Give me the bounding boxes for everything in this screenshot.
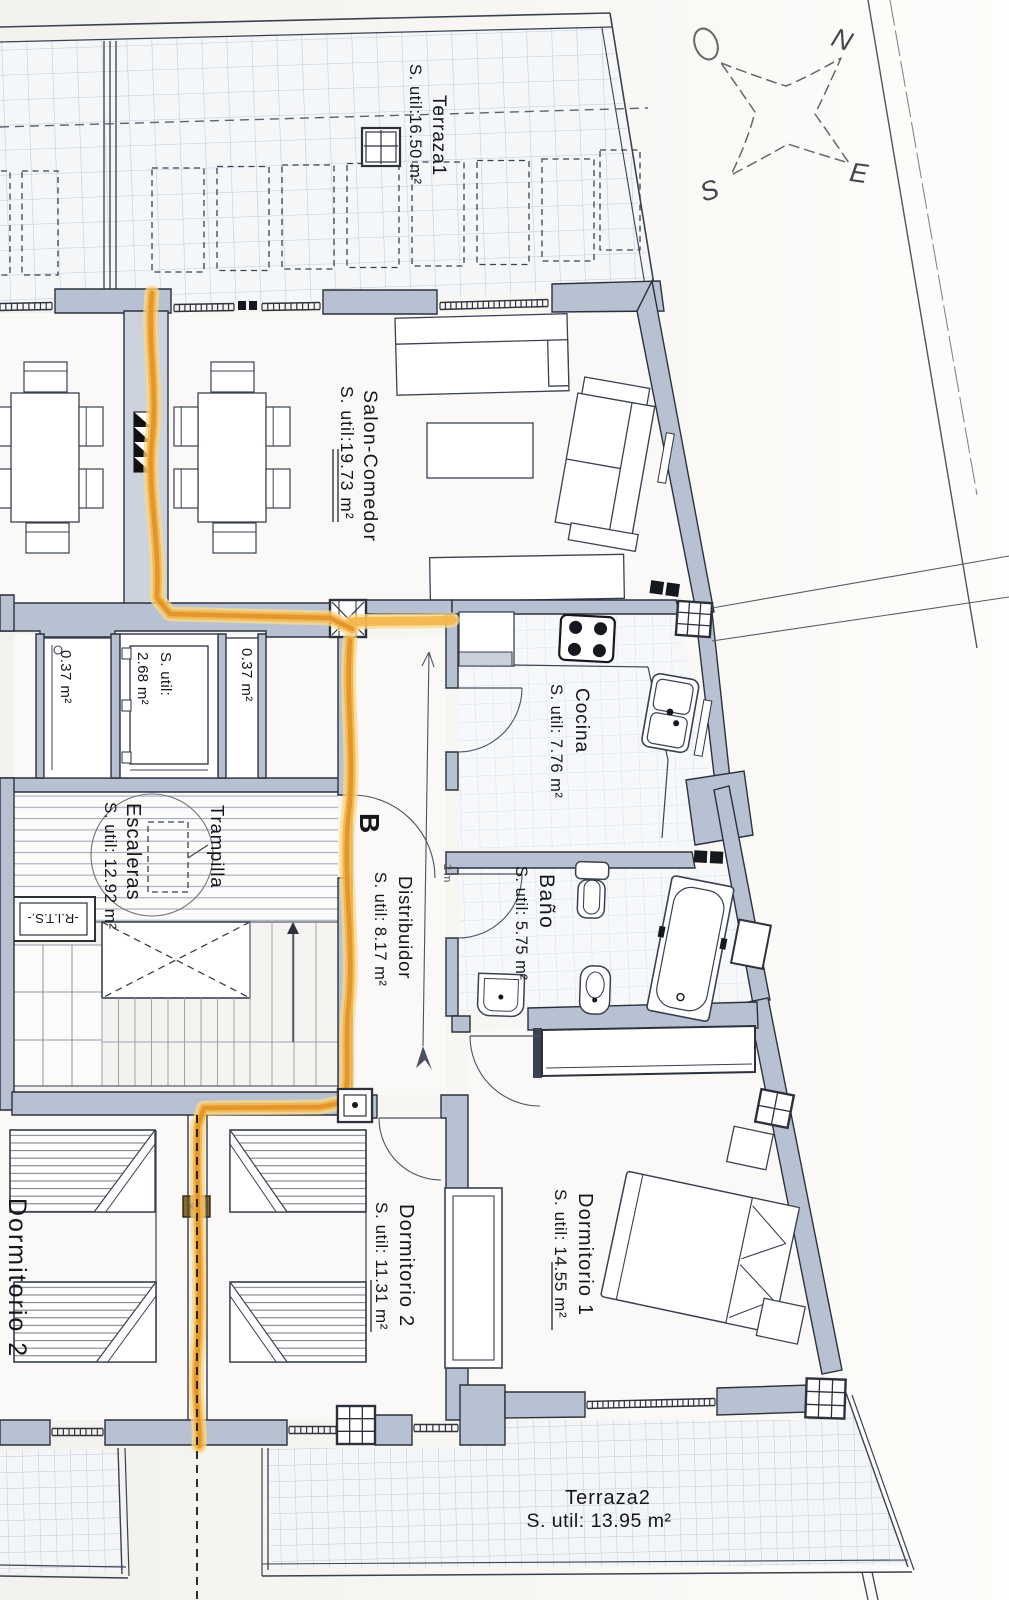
svg-text:S. util: 12.92 m²: S. util: 12.92 m² [101, 802, 120, 930]
svg-text:Escaleras: Escaleras [122, 803, 144, 901]
svg-text:Baño: Baño [535, 874, 558, 929]
svg-text:S. util: 13.95 m²: S. util: 13.95 m² [526, 1510, 671, 1532]
svg-text:Terraza2: Terraza2 [565, 1487, 651, 1509]
svg-text:S. util:: S. util: [157, 652, 174, 696]
svg-text:S. util: 7.76 m²: S. util: 7.76 m² [547, 684, 565, 798]
svg-text:S. util:16.50 m²: S. util:16.50 m² [406, 64, 424, 185]
svg-text:S. util: 11.31 m²: S. util: 11.31 m² [372, 1202, 391, 1330]
svg-text:Salon-Comedor: Salon-Comedor [359, 390, 381, 542]
svg-text:Dormitorio 1: Dormitorio 1 [574, 1193, 596, 1316]
svg-text:S. util: 5.75 m²: S. util: 5.75 m² [512, 866, 530, 980]
svg-text:Terraza1: Terraza1 [428, 95, 449, 176]
svg-text:Cocina: Cocina [571, 688, 592, 753]
svg-text:2.68 m²: 2.68 m² [134, 652, 151, 705]
svg-text:Dormitorio 2: Dormitorio 2 [395, 1204, 417, 1327]
svg-text:0.37 m²: 0.37 m² [57, 650, 74, 704]
svg-text:S. util:19.73 m²: S. util:19.73 m² [337, 386, 357, 520]
svg-text:0.37 m²: 0.37 m² [238, 648, 255, 702]
svg-text:Distribuidor: Distribuidor [395, 876, 416, 979]
svg-text:S. util: 8.17 m²: S. util: 8.17 m² [371, 872, 389, 986]
svg-text:2 m: 2 m [441, 864, 453, 882]
svg-text:Trampilla: Trampilla [207, 805, 228, 888]
svg-text:B: B [354, 813, 385, 833]
svg-text:Dormitorio 2: Dormitorio 2 [3, 1198, 31, 1358]
svg-text:S. util: 14.55 m²: S. util: 14.55 m² [551, 1189, 570, 1318]
svg-text:-R.I.T.S.-: -R.I.T.S.- [27, 911, 78, 926]
